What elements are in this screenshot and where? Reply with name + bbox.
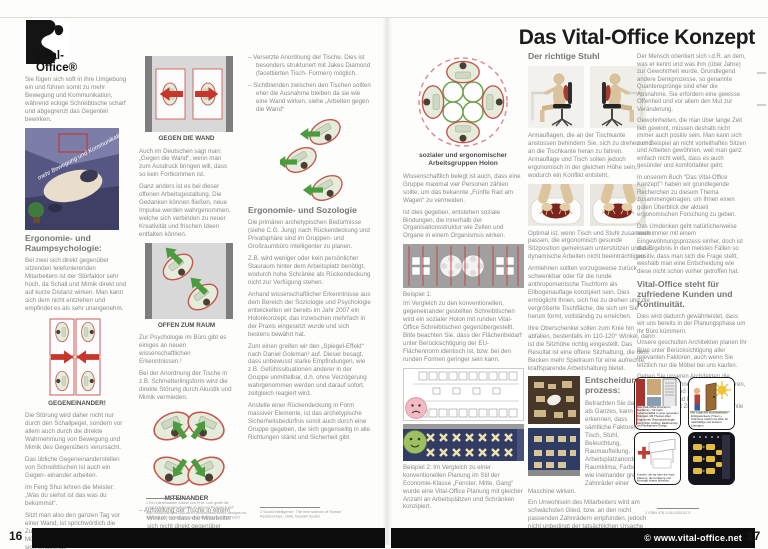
panel-caption: Die Logik des buchstäblichen Erfolgsdenk… xyxy=(691,412,734,428)
paragraph: Unsere geschulten Architekten planen Ihr… xyxy=(637,340,747,370)
caption-gegeneinander: GEGENEINANDER! xyxy=(25,400,129,408)
logo-wordmark: Vital-Office® xyxy=(36,50,93,74)
photo-chair-desk-1 xyxy=(528,66,584,128)
illustration-office-render: mehr Bewegung und Kommunikation xyxy=(25,128,119,230)
panel-caption: Kunden, die wir über die erste Planung, … xyxy=(637,474,680,483)
page16-column-3: – Versetzte Anordnung der Tische. Dies i… xyxy=(248,54,372,446)
panel-office-render-dark xyxy=(688,432,735,485)
paragraph: Anstelle einer Rückendeckung in Form mas… xyxy=(248,402,372,442)
paragraph: Zum einen greifen wir den „Spiegel-Effek… xyxy=(248,343,372,399)
paragraph: Dies wird dadurch gewährleistet, dass wi… xyxy=(637,314,747,337)
floorplan-thumbnail-1 xyxy=(528,376,580,424)
footnote-text: 1 ISBN 978-3-00-026162-3 xyxy=(645,511,755,516)
page-number-17: 17 xyxy=(747,529,760,543)
paragraph: Bei der Anordnung der Tische in z.B. Sch… xyxy=(139,370,234,402)
section-heading-raumpsychologie: Ergonomie- und Raumpsychologie: xyxy=(25,234,129,254)
page16-column-1: Vital-Office® Sie fügen sich soft in ihr… xyxy=(25,20,129,549)
panel-planning-sketch: Kunden, die wir über die erste Planung, … xyxy=(634,432,681,485)
bullet-item: – Versetzte Anordnung der Tische. Dies i… xyxy=(248,54,372,78)
paragraph: Armlehnen sollten vorzugsweise zurück sc… xyxy=(528,265,655,321)
panel-book-collage: Das Vital-Office Konzept in Buchform – f… xyxy=(634,377,681,430)
brochure-spread: Vital-Office® Sie fügen sich soft in ihr… xyxy=(0,0,768,549)
illustration-beispiel2-konventionell xyxy=(403,368,524,421)
intro-paragraph: Sie fügen sich soft in ihre Umgebung ein… xyxy=(25,76,129,124)
paragraph: Im Feng Shui lehren die Meister: „Was du… xyxy=(25,484,129,508)
paragraph: Der Mensch orientiert sich i.d.R. an dem… xyxy=(637,54,747,114)
paragraph: Ihre Oberschenkel sollen zum Knie hin ab… xyxy=(528,325,655,373)
beispiel1-text: Im Vergleich zu den konventionellen, geg… xyxy=(403,300,524,364)
page-number-16: 16 xyxy=(9,529,22,543)
footer-bar-left xyxy=(32,528,385,548)
caption-holon: sozialer und ergonomischer Arbeitsgruppe… xyxy=(413,152,513,168)
dark-office-render-image xyxy=(689,433,731,481)
section-heading-der-richtige-stuhl: Der richtige Stuhl xyxy=(528,52,655,62)
center-fold xyxy=(382,18,392,545)
beispiel2-text: Beispiel 2: Im Vergleich zu einer konven… xyxy=(403,464,524,512)
illustration-miteinander xyxy=(147,406,231,492)
paragraph: In unserem Buch “Das Vital-Office Konzep… xyxy=(637,175,747,220)
illustration-beispiel1-vergleich xyxy=(403,244,524,288)
section-heading-soziologie: Ergonomie- und Sozologie xyxy=(248,206,372,216)
floorplan-thumbnail-2 xyxy=(528,428,580,476)
paragraph: Die primären archetypischen Bedürfnisse … xyxy=(248,219,372,251)
footnote-isbn: 1 ISBN 978-3-00-026162-3 xyxy=(637,508,747,519)
panel-caption: Das Vital-Office Konzept in Buchform – f… xyxy=(637,406,680,428)
armrest-photos xyxy=(528,184,655,226)
paragraph: Armauflagen, die an der Tischkante ansto… xyxy=(528,132,655,180)
footer-bar-right: © www.vital-office.net xyxy=(391,528,755,548)
illustration-beispiel2-vital-office xyxy=(403,424,524,461)
paragraph: Die Störung wird daher nicht nur durch d… xyxy=(25,412,129,452)
page-edge-mark xyxy=(757,72,766,74)
copyright-url: © www.vital-office.net xyxy=(644,533,742,543)
paragraph: Z.B. wird weniger oder kein persönlicher… xyxy=(248,255,372,287)
paragraph: Zur Psychologie im Büro gibt es einiges … xyxy=(139,334,234,366)
illustration-gegen-die-wand xyxy=(145,56,233,132)
page-edge-mark xyxy=(757,104,766,106)
illustration-gegeneinander xyxy=(47,317,103,397)
panel-door-chance-cartoon: Die Logik des buchstäblichen Erfolgsdenk… xyxy=(688,377,735,430)
paragraph: Bei zwei sich direkt gegenüber sitzenden… xyxy=(25,257,129,313)
illustration-versetzte-anordnung xyxy=(280,118,346,202)
paragraph: Wissenschaftlich belegt ist auch, dass e… xyxy=(403,173,524,205)
page-title: Das Vital-Office Konzept xyxy=(519,26,755,50)
illustration-offen-zum-raum xyxy=(145,243,233,319)
page17-column-c: Der Mensch orientiert sich i.d.R. an dem… xyxy=(637,54,747,423)
page17-column-a: sozialer und ergonomischer Arbeitsgruppe… xyxy=(403,55,524,515)
paragraph: Ist dies gegeben, entstehen soziale Bind… xyxy=(403,209,524,241)
paragraph: Gewohnheiten, die man über lange Zeit li… xyxy=(637,118,747,171)
caption-offen-zum-raum: OFFEN ZUM RAUM xyxy=(139,322,234,330)
footnote-text: 2 Social Intelligence: The new science o… xyxy=(260,510,364,520)
section-heading-zufriedene-kunden: Vital-Office steht für zufriedene Kunden… xyxy=(637,280,747,310)
footnote-rule xyxy=(657,508,699,509)
footnote-rule xyxy=(260,507,320,508)
paragraph: Das übliche Gegeneinanderstellen von Sch… xyxy=(25,456,129,480)
caption-gegen-die-wand: GEGEN DIE WAND xyxy=(139,135,234,143)
bullet-item: – Sichtblenden zwischen den Tischen soll… xyxy=(248,82,372,114)
paragraph: Das Umdenken geht natürlicherweise auch … xyxy=(637,224,747,277)
beispiel1-label: Beispiel 1: xyxy=(403,291,524,299)
footnote-2: 2 Social Intelligence: The new science o… xyxy=(260,507,364,527)
paragraph: Auch im Deutschen sagt man: „Gegen die W… xyxy=(139,148,234,180)
page16-column-2: GEGEN DIE WAND Auch im Deutschen sagt ma… xyxy=(139,56,234,543)
chair-photos xyxy=(528,66,655,128)
paragraph: Ganz anders ist es bei dieser offenen Ar… xyxy=(139,183,234,239)
paragraph: Anhand wissenschaftlicher Erkenntnisse a… xyxy=(248,291,372,339)
paragraph: Optimal ist, wenn Tisch und Stuhl zusamm… xyxy=(528,230,655,262)
footnote-rule xyxy=(146,498,192,499)
vital-office-logo: Vital-Office® xyxy=(25,20,93,70)
footnote-text: 1 Ein interessanter Artikel von Prof. Lu… xyxy=(146,501,250,521)
photo-arms-on-desk-1 xyxy=(528,184,584,226)
illustration-arbeitsgruppen-holon xyxy=(416,55,510,149)
